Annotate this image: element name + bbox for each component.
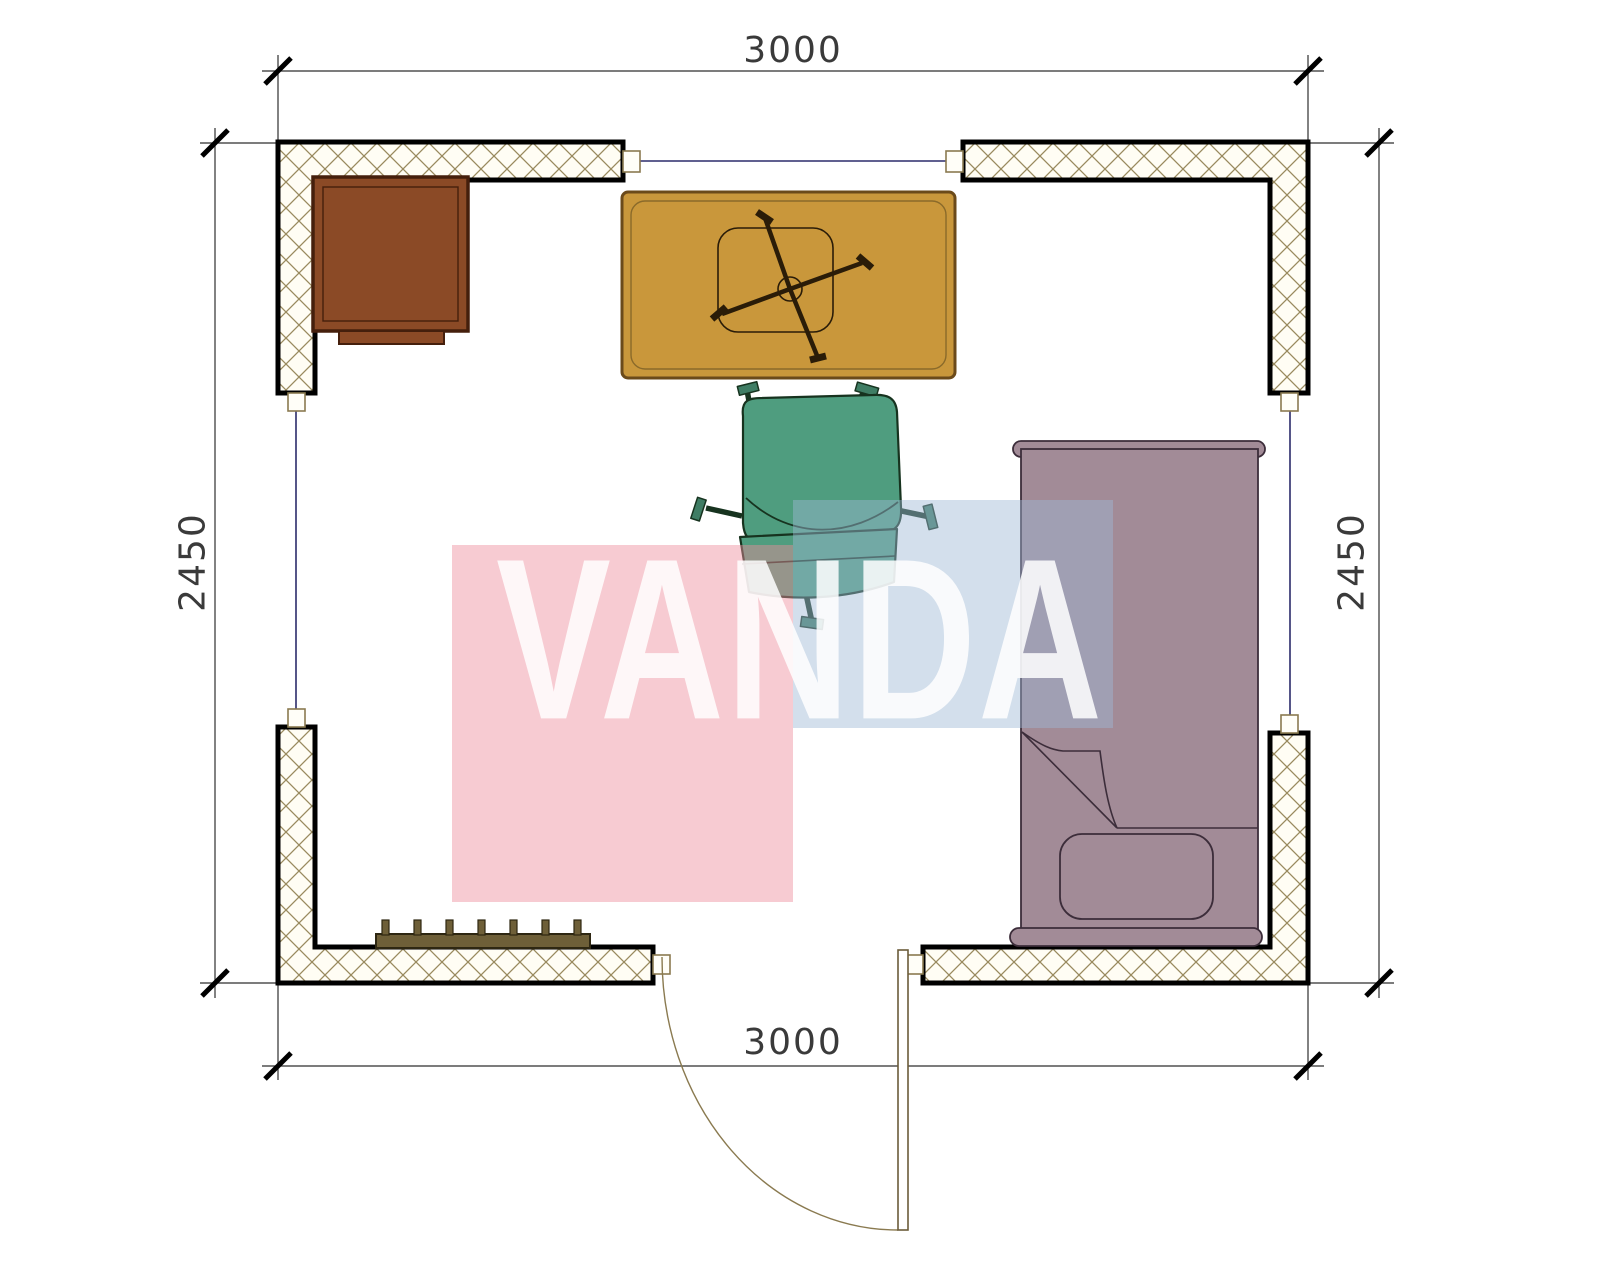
dimension-label-right: 2450 bbox=[1332, 512, 1373, 612]
dimension-label-top: 3000 bbox=[278, 30, 1308, 71]
floor-plan-canvas: 3000 3000 2450 2450 VANDA bbox=[0, 0, 1600, 1280]
door-leaf bbox=[898, 950, 908, 1230]
watermark-text: VANDA bbox=[531, 506, 1069, 775]
wall-top-right bbox=[963, 142, 1308, 393]
radiator bbox=[376, 920, 590, 948]
dimension-label-left: 2450 bbox=[173, 512, 214, 612]
door-swing-arc bbox=[662, 957, 898, 1230]
dimension-label-bottom: 3000 bbox=[278, 1022, 1308, 1063]
bed-footboard bbox=[1010, 928, 1262, 946]
door bbox=[662, 950, 908, 1230]
corner-cabinet bbox=[313, 177, 468, 344]
